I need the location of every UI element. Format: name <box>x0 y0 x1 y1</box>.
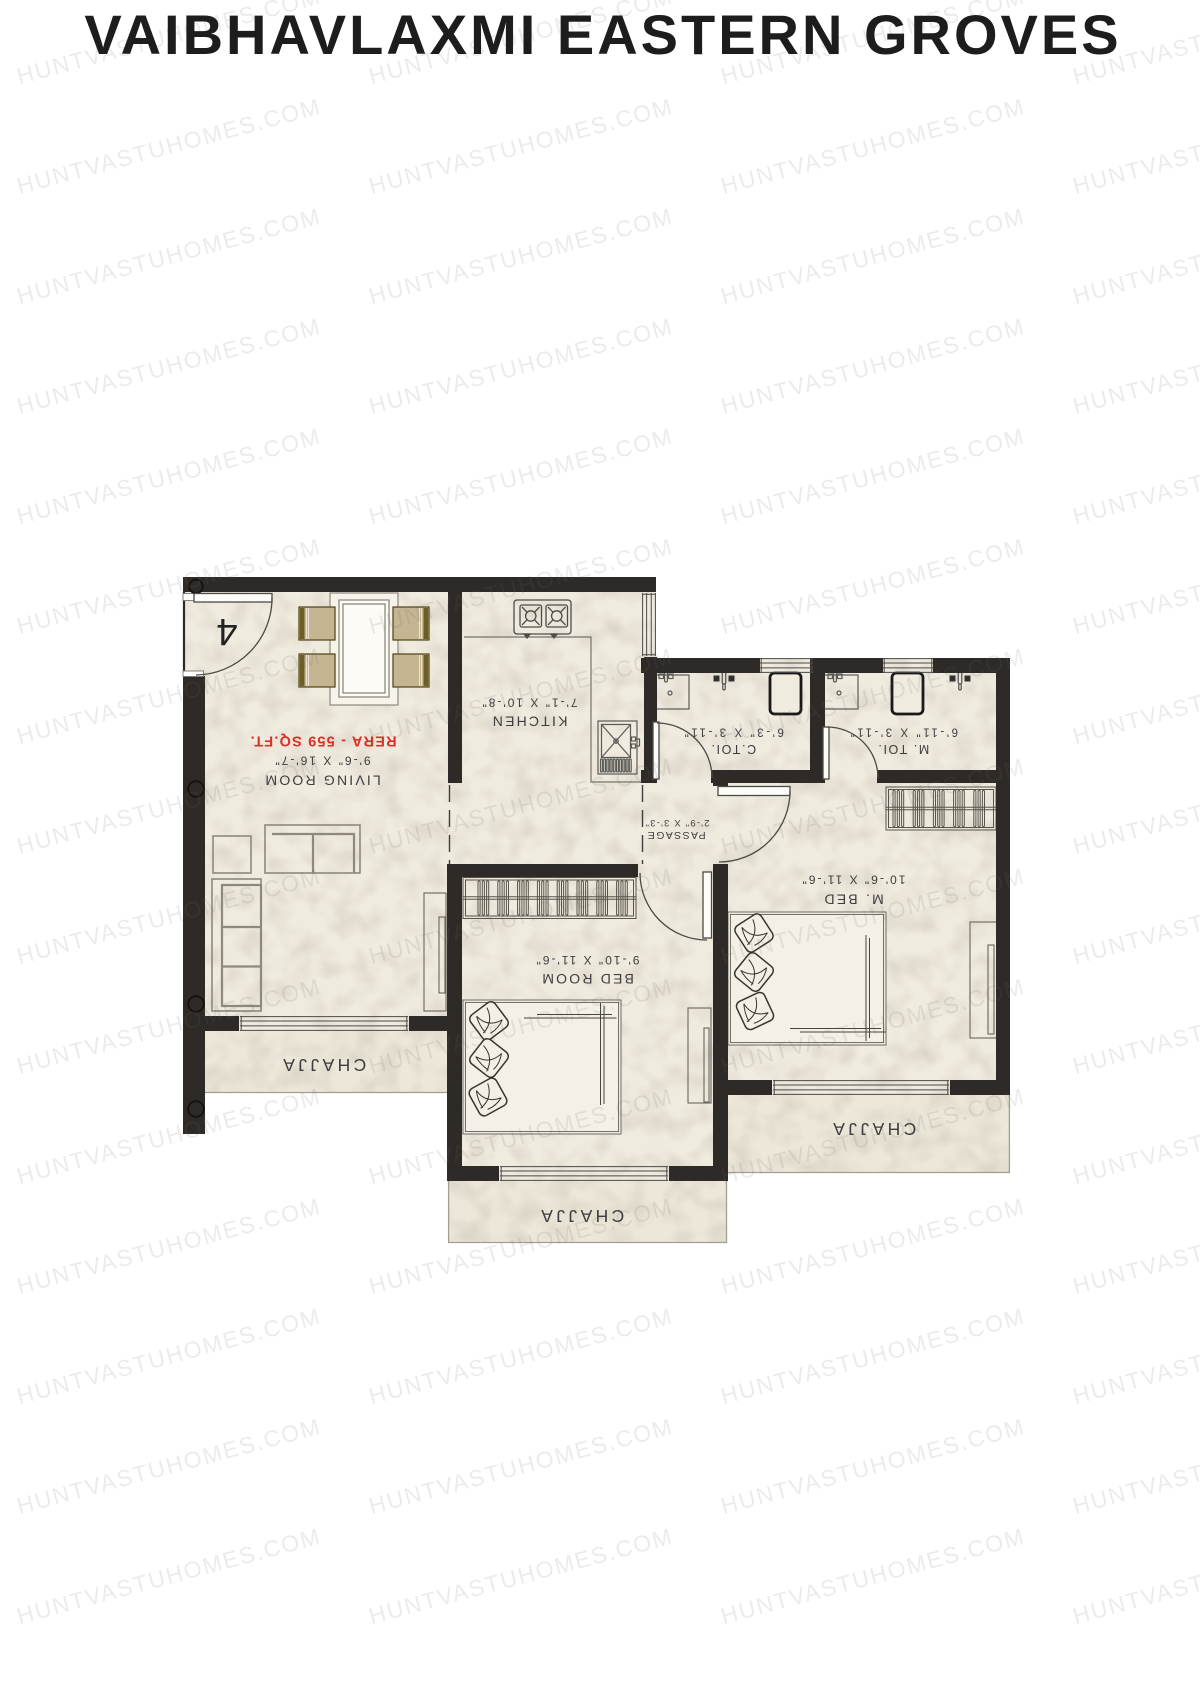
svg-text:BED ROOM: BED ROOM <box>540 971 634 987</box>
svg-text:2'-9" X 3'-3": 2'-9" X 3'-3" <box>644 817 709 828</box>
svg-text:KITCHEN: KITCHEN <box>491 713 568 729</box>
svg-text:M. TOI.: M. TOI. <box>877 742 929 756</box>
svg-text:4: 4 <box>216 610 237 652</box>
svg-text:6'-11" X 3'-11": 6'-11" X 3'-11" <box>848 725 958 737</box>
svg-text:10'-6" X 11'-6": 10'-6" X 11'-6" <box>801 872 906 886</box>
svg-text:PASSAGE: PASSAGE <box>646 829 705 841</box>
svg-text:CHAJJA: CHAJJA <box>280 1055 367 1075</box>
svg-text:9'-10" X 11'-6": 9'-10" X 11'-6" <box>535 953 640 967</box>
